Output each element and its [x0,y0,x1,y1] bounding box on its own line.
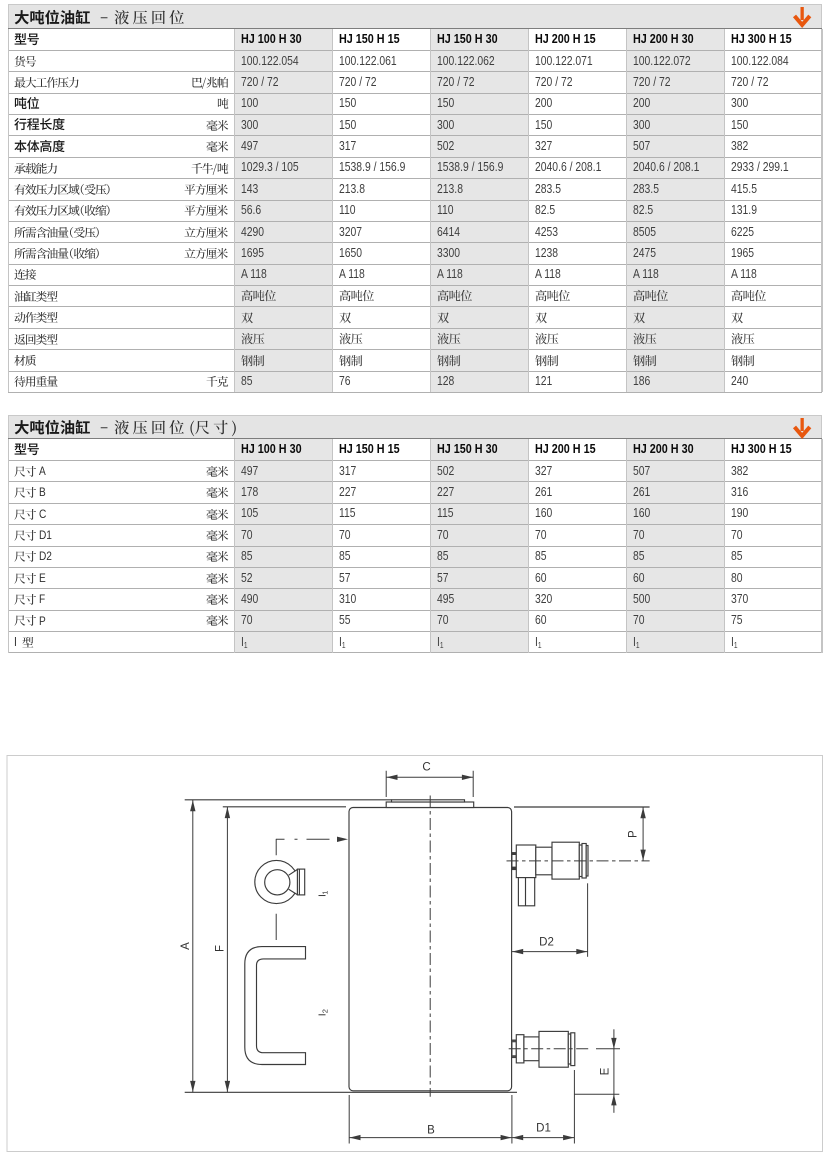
svg-text:B: B [427,1124,435,1136]
svg-text:A: A [180,942,192,950]
svg-text:2: 2 [320,1009,329,1013]
svg-text:C: C [422,762,430,774]
svg-text:1: 1 [320,891,329,895]
svg-text:P: P [628,830,640,838]
svg-text:E: E [600,1067,612,1075]
svg-text:D2: D2 [539,936,554,948]
svg-text:D1: D1 [536,1122,551,1134]
svg-text:F: F [214,945,226,952]
